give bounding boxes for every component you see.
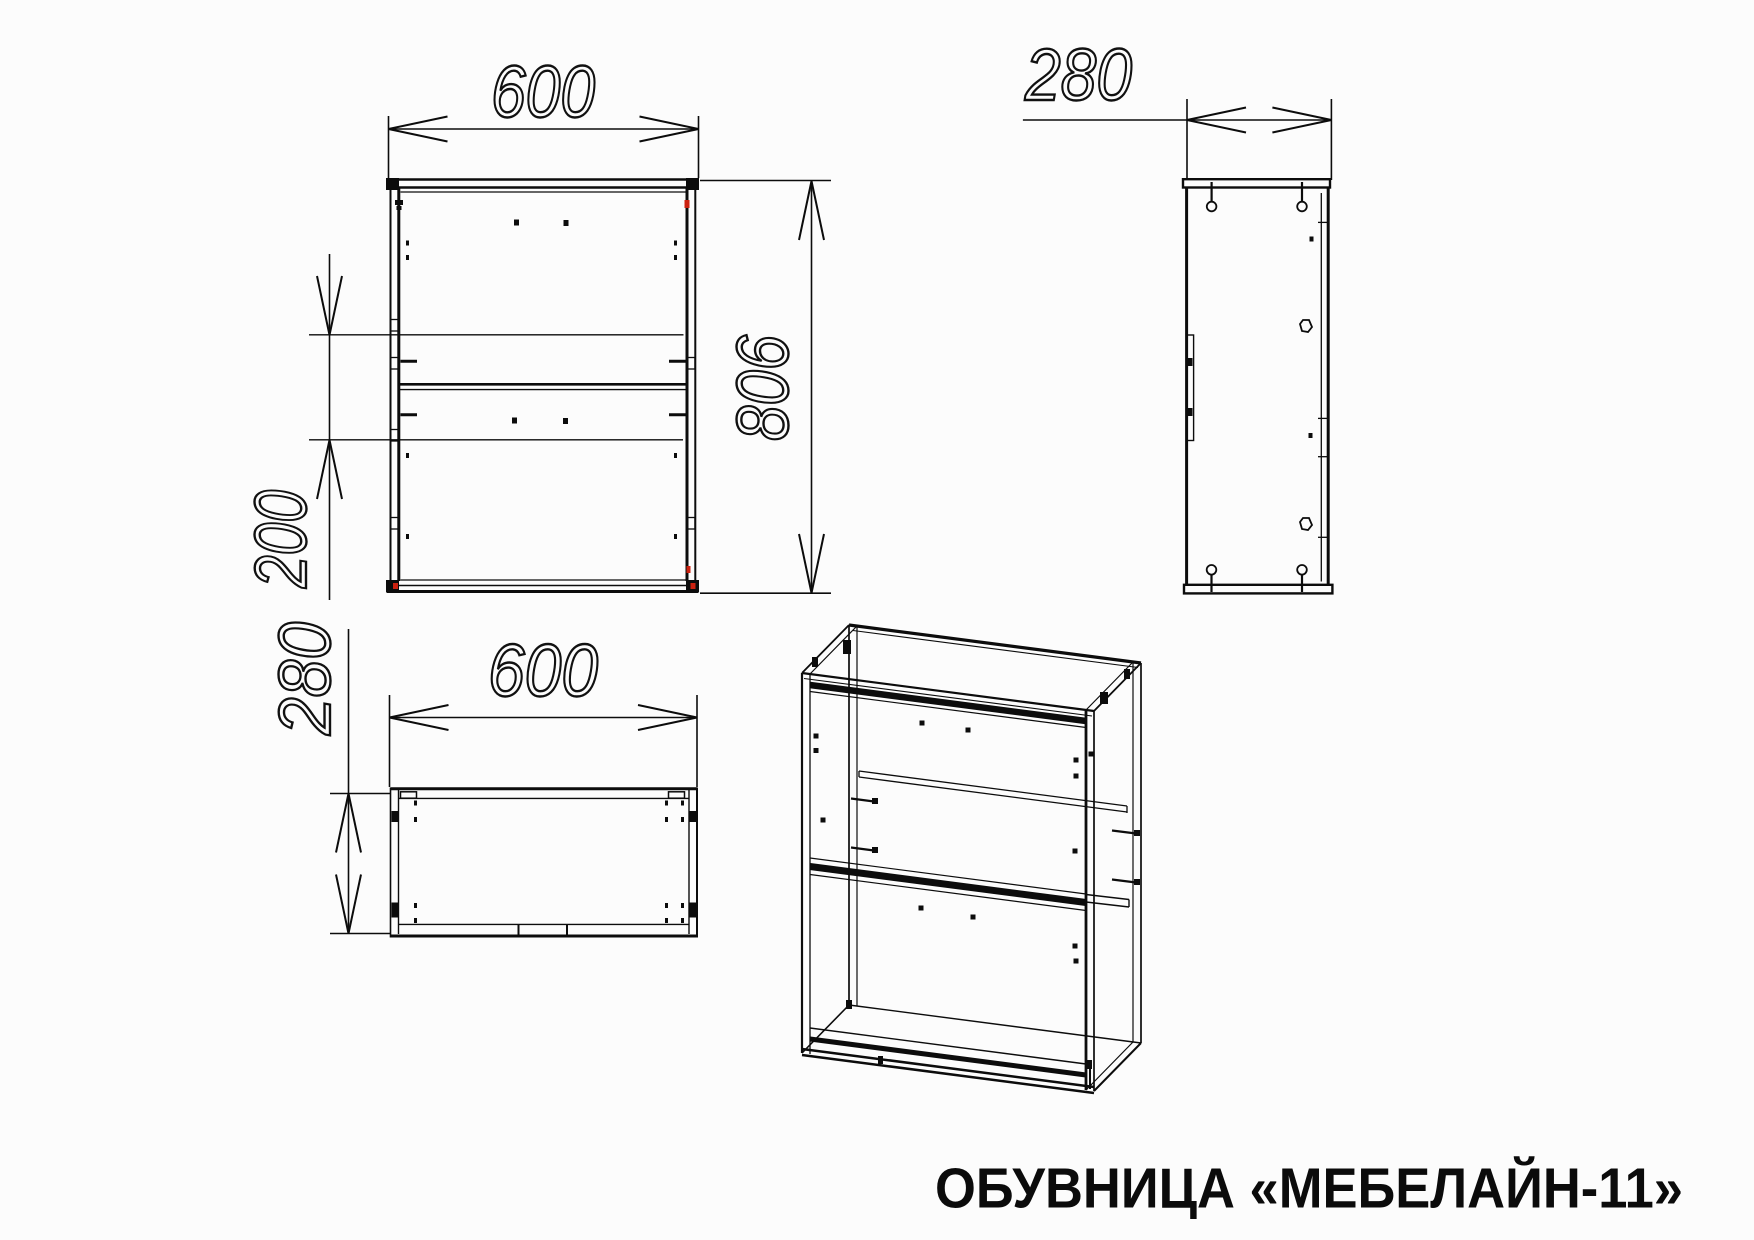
svg-text:600: 600 bbox=[491, 52, 595, 133]
svg-text:280: 280 bbox=[1024, 35, 1132, 116]
svg-text:600: 600 bbox=[488, 629, 598, 712]
svg-text:ОБУВНИЦА «МЕБЕЛАЙН-11»: ОБУВНИЦА «МЕБЕЛАЙН-11» bbox=[935, 1156, 1683, 1220]
svg-text:806: 806 bbox=[723, 335, 804, 441]
svg-text:280: 280 bbox=[265, 622, 346, 736]
svg-text:200: 200 bbox=[241, 490, 322, 589]
